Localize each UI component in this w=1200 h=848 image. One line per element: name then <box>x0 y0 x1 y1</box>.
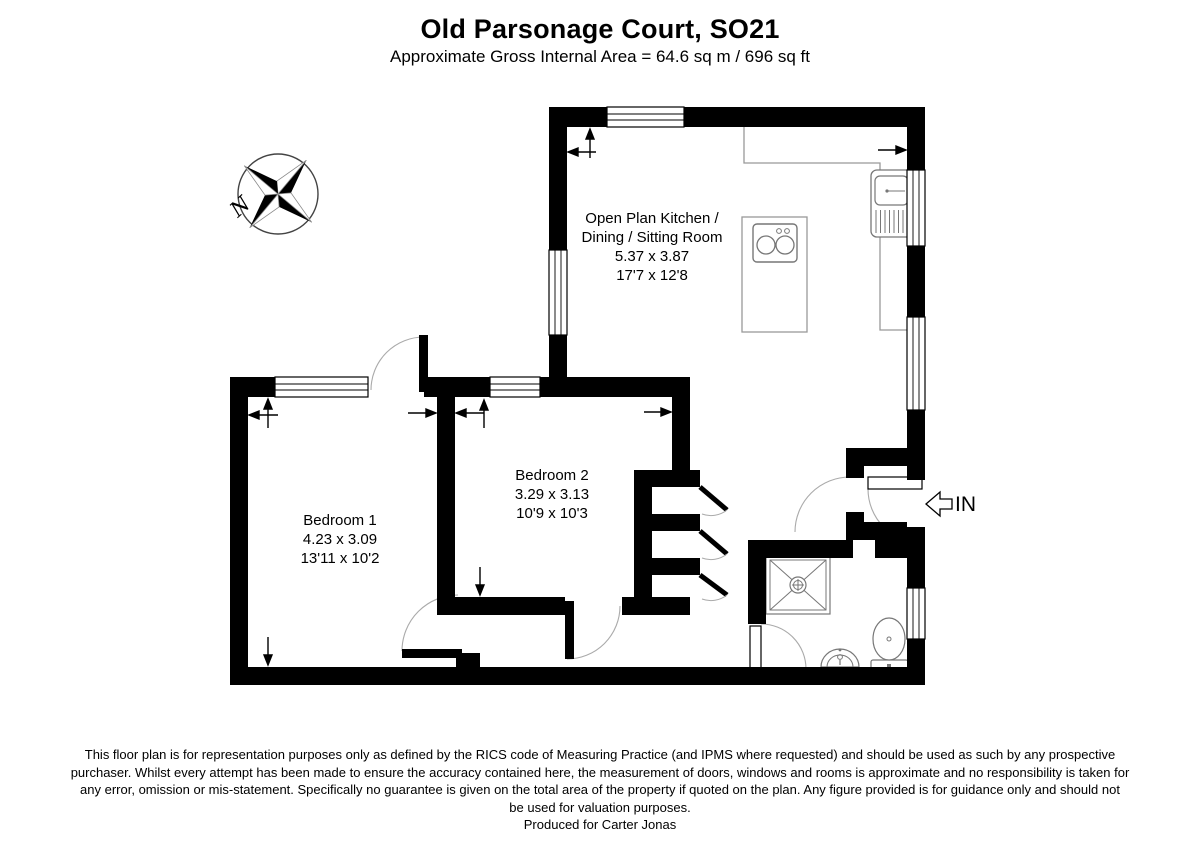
entrance-in-label: IN <box>955 493 976 517</box>
produced-for: Produced for Carter Jonas <box>70 816 1130 834</box>
kitchen-name-line2: Dining / Sitting Room <box>582 228 723 247</box>
closet-doors <box>700 487 727 601</box>
room-label-bedroom2: Bedroom 2 3.29 x 3.13 10'9 x 10'3 <box>515 466 589 523</box>
hob-icon <box>753 224 797 262</box>
bedroom1-dims-imperial: 13'11 x 10'2 <box>301 549 380 568</box>
toilet-icon <box>871 618 908 670</box>
in-arrow-icon <box>926 492 952 516</box>
bathroom-door-leaf <box>750 626 761 668</box>
bedroom2-door-leaf <box>565 601 574 659</box>
floorplan-page: Old Parsonage Court, SO21 Approximate Gr… <box>0 0 1200 848</box>
disclaimer-line2: purchaser. Whilst every attempt has been… <box>70 764 1130 782</box>
kitchen-name-line1: Open Plan Kitchen / <box>582 209 723 228</box>
room-label-bedroom1: Bedroom 1 4.23 x 3.09 13'11 x 10'2 <box>301 511 380 568</box>
floor-plan-drawing: N <box>0 0 1200 848</box>
bedroom1-door-leaf <box>402 649 462 658</box>
bedroom2-name: Bedroom 2 <box>515 466 589 485</box>
bedroom2-dims-imperial: 10'9 x 10'3 <box>515 504 589 523</box>
hall-door-arc <box>795 477 850 532</box>
disclaimer-line4: be used for valuation purposes. <box>70 799 1130 817</box>
shower-icon <box>766 556 830 614</box>
kitchen-dims-metric: 5.37 x 3.87 <box>582 247 723 266</box>
bedroom1-dims-metric: 4.23 x 3.09 <box>301 530 380 549</box>
compass-icon: N <box>225 154 318 234</box>
disclaimer-line1: This floor plan is for representation pu… <box>70 746 1130 764</box>
basin-icon <box>821 649 859 667</box>
bedroom2-dims-metric: 3.29 x 3.13 <box>515 485 589 504</box>
compass-north-label: N <box>225 191 256 222</box>
bedroom1-name: Bedroom 1 <box>301 511 380 530</box>
disclaimer-line3: any error, omission or mis-statement. Sp… <box>70 781 1130 799</box>
kitchen-dims-imperial: 17'7 x 12'8 <box>582 266 723 285</box>
room-label-kitchen: Open Plan Kitchen / Dining / Sitting Roo… <box>582 209 723 285</box>
footer-disclaimer: This floor plan is for representation pu… <box>70 746 1130 834</box>
